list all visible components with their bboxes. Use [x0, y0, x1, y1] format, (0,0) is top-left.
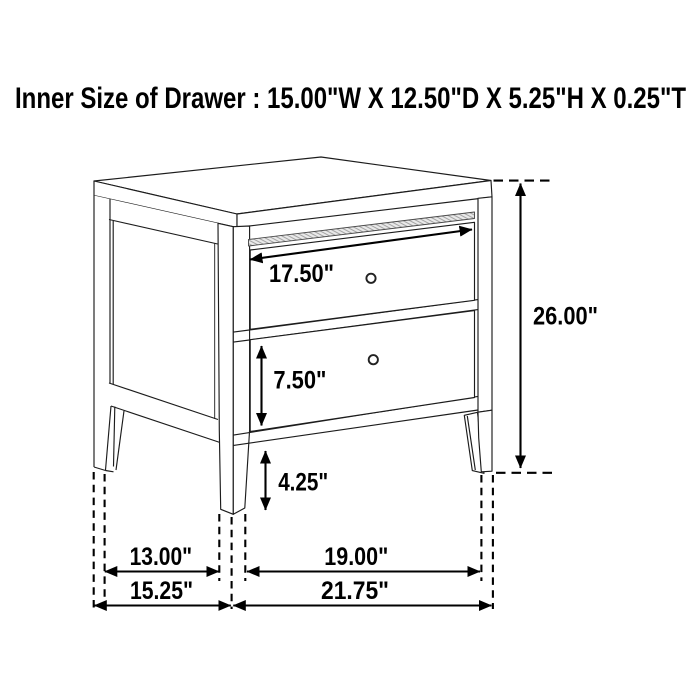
svg-text:7.50": 7.50" [273, 367, 326, 395]
svg-text:4.25": 4.25" [278, 469, 328, 497]
svg-text:13.00": 13.00" [130, 543, 193, 571]
svg-text:Inner Size of Drawer : 15.00"W: Inner Size of Drawer : 15.00"W X 12.50"D… [15, 82, 686, 115]
svg-text:26.00": 26.00" [533, 302, 598, 330]
svg-text:21.75": 21.75" [321, 577, 389, 605]
svg-text:17.50": 17.50" [269, 260, 334, 288]
svg-text:19.00": 19.00" [324, 543, 388, 571]
svg-text:15.25": 15.25" [130, 577, 193, 605]
